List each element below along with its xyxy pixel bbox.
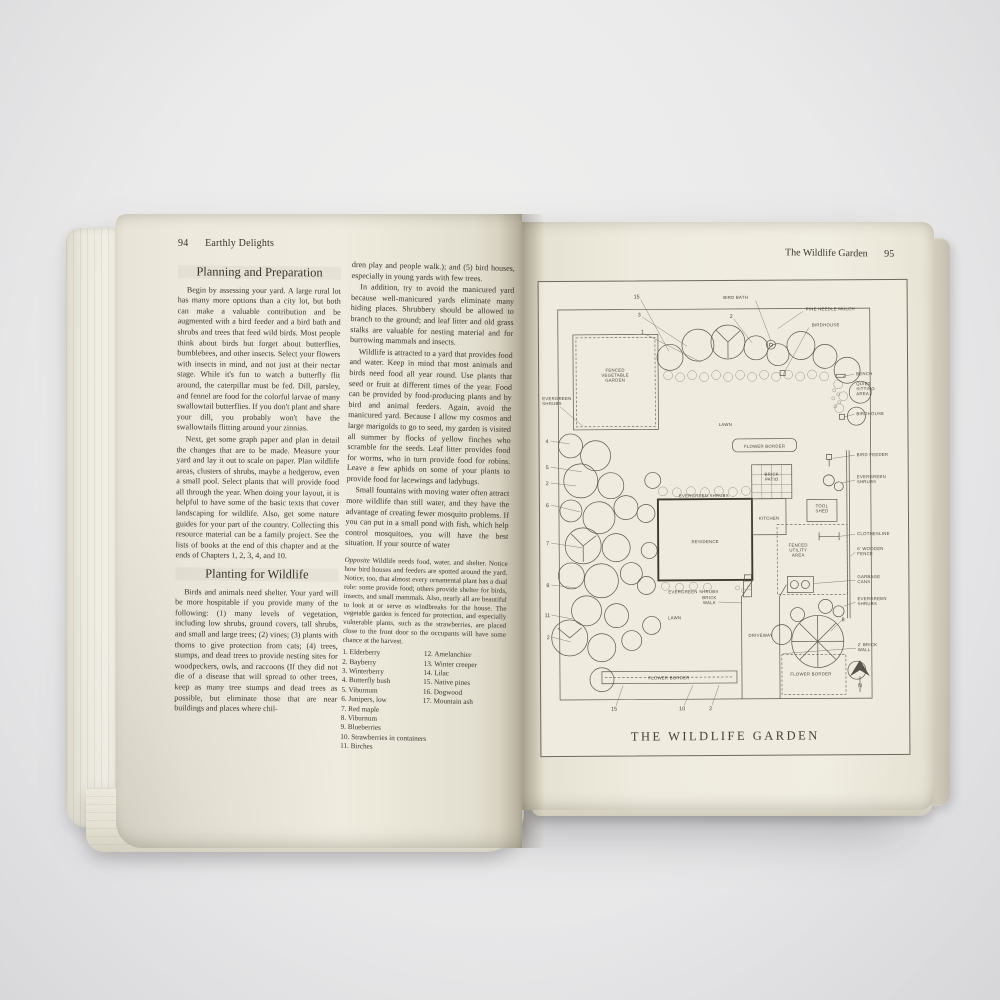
shrub-row-top — [664, 370, 848, 414]
leader-line — [756, 301, 771, 341]
leader-line — [560, 407, 582, 426]
leader-line — [719, 602, 742, 603]
plant-list-col-a: 1. Elderberry2. Bayberry3. Winterberry4.… — [340, 648, 424, 753]
plan-label: BIRDHOUSE — [856, 411, 884, 416]
photo-background: 94 Earthly Delights Planning and Prepara… — [0, 0, 1000, 1000]
plan-number: 2 — [709, 706, 712, 712]
leader-line — [841, 480, 855, 483]
paragraph: In addition, try to avoid the manicured … — [350, 282, 515, 350]
plan-label: BIRD FEEDER — [857, 452, 889, 457]
leader-line — [551, 585, 576, 588]
flagstones — [832, 389, 841, 408]
plan-label: FLOWER BORDER — [648, 675, 689, 680]
plan-label: BRICKPATIO — [765, 472, 779, 482]
figure-caption-text: Opposite Wildlife needs food, water, and… — [343, 556, 508, 649]
leader-line — [840, 534, 855, 536]
plan-number: 8 — [546, 583, 549, 589]
plan-number: 15 — [634, 295, 640, 301]
garbage-cans — [787, 576, 813, 592]
plant-list-item: 11. Birches — [340, 742, 422, 753]
leader-line — [616, 686, 623, 706]
plan-label: FLOWER BORDER — [744, 444, 785, 449]
plan-label: QUIETSITTINGAREA — [856, 381, 875, 396]
plan-label: DRIVEWAY — [748, 633, 772, 638]
running-header-left: 94 Earthly Delights — [178, 238, 274, 249]
leader-line — [850, 552, 855, 556]
leader-line — [551, 483, 576, 486]
text-columns: Planning and Preparation Begin by assess… — [176, 260, 516, 752]
plan-label: RESIDENCE — [691, 539, 718, 544]
paragraph: Wildlife is attracted to a yard that pro… — [347, 347, 513, 489]
leader-line — [712, 685, 719, 705]
bench-icon — [836, 374, 845, 377]
left-page: 94 Earthly Delights Planning and Prepara… — [116, 214, 522, 848]
garden-plan-figure: BIRD BATHPINE NEEDLE MULCHBIRDHOUSEFENCE… — [538, 279, 911, 757]
plan-number: 1 — [641, 329, 644, 335]
bird-feeder-icon — [827, 454, 832, 459]
leader-line — [814, 580, 855, 583]
paragraph: Small fountains with moving water often … — [345, 485, 510, 553]
plan-number: 15 — [611, 707, 617, 713]
plan-number: 3 — [638, 313, 641, 319]
caption-lead: Opposite — [345, 556, 370, 565]
running-title-right: The Wildlife Garden — [785, 247, 868, 259]
plan-label: FENCEDVEGETABLEGARDEN — [601, 368, 629, 383]
residence — [658, 499, 786, 582]
leader-line — [833, 455, 855, 458]
leader-line — [551, 441, 570, 444]
plan-number: 5 — [546, 465, 549, 471]
section-heading-planting: Planting for Wildlife — [175, 567, 338, 581]
plan-label: 2' BRICKWALL — [858, 642, 878, 652]
plan-label: EVERGREENSHRUBS — [857, 596, 886, 606]
running-title-left: Earthly Delights — [205, 238, 274, 249]
plan-number: 6 — [546, 503, 549, 509]
plan-label: EVERGREENSHRUBS — [857, 474, 886, 484]
plant-list: 1. Elderberry2. Bayberry3. Winterberry4.… — [340, 648, 505, 755]
plan-label: LAWN — [719, 422, 732, 427]
tree-canopies-top — [657, 324, 872, 426]
plan-number: 8 — [842, 617, 845, 623]
leader-line — [551, 505, 580, 512]
leader-line — [844, 602, 856, 606]
plan-number: 11 — [545, 613, 551, 619]
right-page: The Wildlife Garden 95 — [522, 222, 934, 810]
leader-line — [843, 414, 854, 417]
leader-line — [684, 685, 693, 705]
page-number-right: 95 — [884, 249, 894, 260]
plan-label: PINE NEEDLE MULCH — [806, 306, 855, 311]
open-book: 94 Earthly Delights Planning and Prepara… — [0, 0, 1000, 1000]
plan-label: FLOWER BORDER — [790, 671, 831, 676]
leader-line — [552, 615, 573, 619]
plan-number: 2 — [546, 481, 549, 487]
plan-label: BIRD BATH — [723, 295, 748, 300]
plan-label: EVERGREENSHRUBS — [542, 396, 571, 406]
plan-number: 2 — [730, 314, 733, 320]
plan-label: GARBAGECANS — [857, 574, 880, 584]
driveway — [741, 581, 787, 699]
trees-bottom-right — [772, 607, 866, 680]
paragraph: Birds and animals need shelter. Your yar… — [174, 587, 338, 716]
right-column: dren play and people walk.); and (5) bir… — [340, 260, 515, 755]
left-column: Planning and Preparation Begin by assess… — [174, 259, 341, 752]
leader-line — [551, 467, 582, 472]
paragraph: dren play and people walk.); and (5) bir… — [351, 260, 514, 285]
birdhouse-icon-2 — [839, 414, 844, 419]
plant-list-item: 17. Mountain ash — [423, 697, 505, 708]
plan-label: BIRDHOUSE — [812, 322, 840, 327]
plan-label: 6' WOODENFENCE — [857, 546, 884, 556]
leader-line — [643, 317, 687, 346]
plan-label: FENCEDUTILITYAREA — [789, 542, 808, 557]
leader-line — [734, 319, 752, 343]
leader-line — [646, 334, 701, 362]
garden-plan-svg: BIRD BATHPINE NEEDLE MULCHBIRDHOUSEFENCE… — [540, 284, 909, 718]
plan-label: TOOLSHED — [815, 503, 828, 513]
plan-label: LAWN — [668, 615, 681, 620]
plan-number: N — [858, 683, 862, 689]
plan-number: 4 — [546, 439, 549, 445]
clothesline — [819, 532, 839, 540]
evergreen-shrubs-right — [818, 475, 844, 617]
running-header-right: The Wildlife Garden 95 — [785, 247, 894, 260]
plan-caption: THE WILDLIFE GARDEN — [541, 728, 909, 745]
page-number-left: 94 — [178, 238, 188, 249]
leader-line — [552, 637, 571, 642]
leader-line — [778, 312, 803, 329]
plant-list-col-b: 12. Amelanchier13. Winter creeper14. Lil… — [421, 650, 505, 755]
plan-label: BRICKWALK — [702, 595, 716, 605]
section-heading-planning: Planning and Preparation — [178, 265, 341, 279]
paragraph: Begin by assessing your yard. A large ru… — [177, 285, 341, 435]
plan-number: 10 — [679, 706, 685, 712]
plan-label: EVERGREEN SHRUBS — [668, 589, 718, 594]
paragraph: Next, get some graph paper and plan in d… — [176, 434, 340, 563]
plan-label: BENCH — [856, 371, 872, 376]
caption-body: Wildlife needs food, water, and shelter.… — [343, 557, 508, 646]
plan-label: CLOTHESLINE — [857, 531, 890, 536]
brick-walk — [743, 581, 751, 597]
plan-number: 2 — [547, 635, 550, 641]
plan-number: 7 — [546, 541, 549, 547]
birdhouse-icon — [780, 371, 785, 376]
wooden-fence — [847, 450, 851, 618]
leader-line — [551, 543, 582, 548]
plan-label: EVERGREEN SHRUBS — [679, 493, 729, 498]
woodland-left — [550, 433, 662, 692]
plan-label: KITCHEN — [759, 516, 780, 521]
